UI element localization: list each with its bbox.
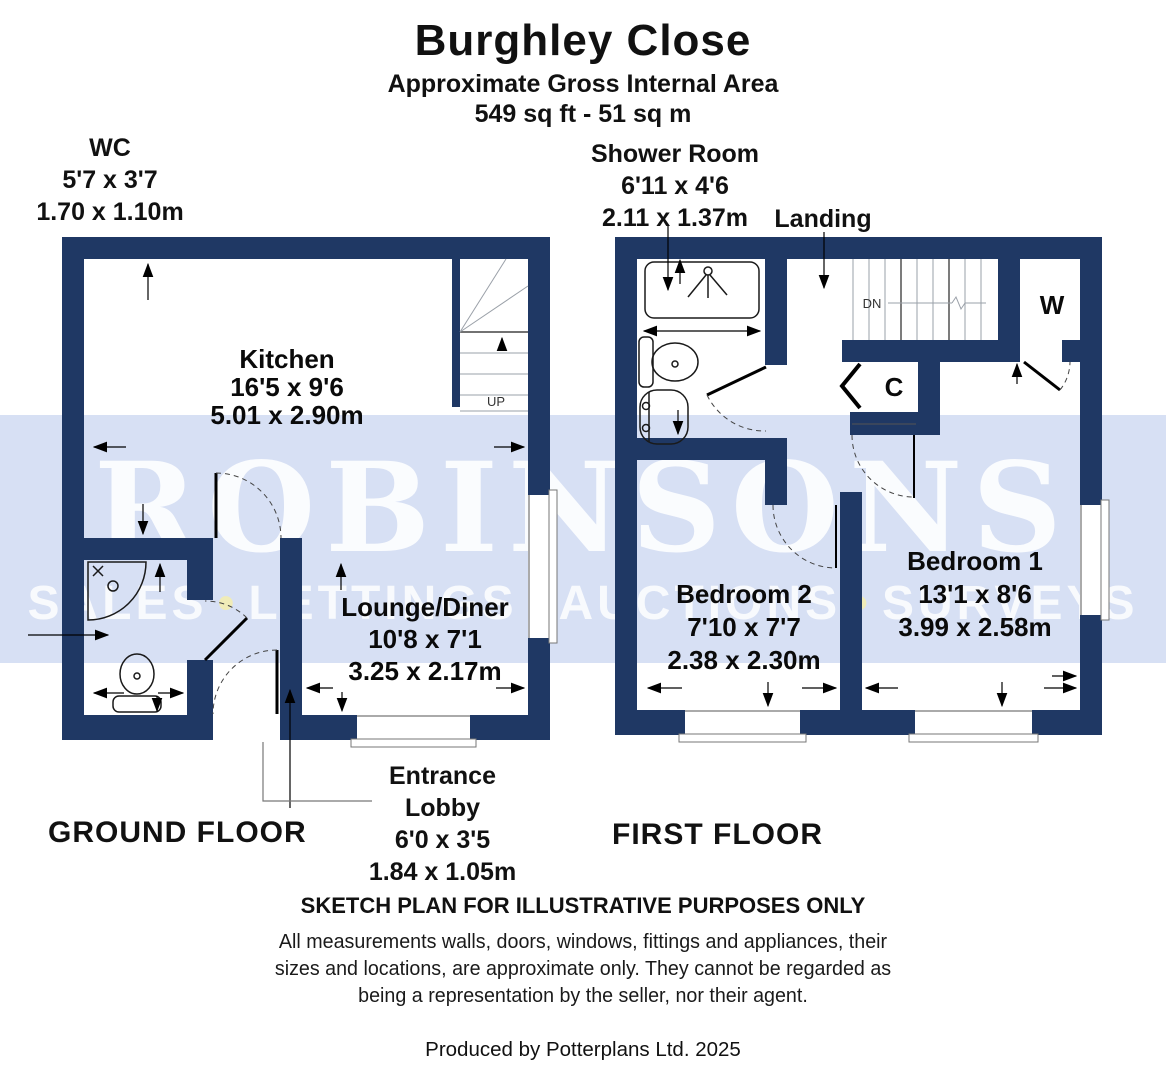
room-size-metric: 1.70 x 1.10m <box>20 196 200 228</box>
bedroom2-label: Bedroom 2 7'10 x 7'7 2.38 x 2.30m <box>667 579 820 675</box>
first-floor-plan: DN <box>615 226 1109 742</box>
sketch-plan-note: SKETCH PLAN FOR ILLUSTRATIVE PURPOSES ON… <box>0 893 1166 919</box>
bedroom1-side-window <box>1080 500 1109 620</box>
page-title: Burghley Close <box>0 16 1166 66</box>
disclaimer-line: sizes and locations, are approximate onl… <box>23 955 1142 982</box>
cupboard-label: C <box>885 372 904 402</box>
room-size-imperial: 6'11 x 4'6 <box>582 170 768 202</box>
front-door <box>213 650 277 714</box>
room-name: Lounge/Diner <box>341 592 509 622</box>
landing-callout: Landing <box>753 203 893 235</box>
room-size-metric: 3.25 x 2.17m <box>348 656 501 686</box>
room-name: Entrance Lobby <box>350 760 535 824</box>
bedroom2-door <box>773 505 836 568</box>
wc-door <box>205 601 247 660</box>
room-size-imperial: 10'8 x 7'1 <box>368 624 482 654</box>
gross-internal-area: 549 sq ft - 51 sq m <box>0 100 1166 129</box>
corner-basin-icon <box>88 562 146 620</box>
lounge-window <box>351 715 476 747</box>
kitchen-label: Kitchen 16'5 x 9'6 5.01 x 2.90m <box>210 344 363 430</box>
toilet-icon <box>639 337 698 387</box>
stairs-up-label: UP <box>487 394 505 409</box>
wc-room-callout: WC 5'7 x 3'7 1.70 x 1.10m <box>20 132 200 228</box>
ground-floor-title: GROUND FLOOR <box>48 816 307 850</box>
room-size-imperial: 7'10 x 7'7 <box>687 612 801 642</box>
room-name: Kitchen <box>239 344 334 374</box>
entrance-lobby-callout: Entrance Lobby 6'0 x 3'5 1.84 x 1.05m <box>350 760 535 888</box>
room-size-imperial: 6'0 x 3'5 <box>350 824 535 856</box>
shower-tray-icon <box>645 262 759 318</box>
room-name: Landing <box>753 203 893 235</box>
kitchen-door <box>216 473 281 538</box>
wardrobe-label: W <box>1040 290 1065 320</box>
room-size-imperial: 13'1 x 8'6 <box>918 579 1032 609</box>
floorplan-page: ROBINSONS SALES•LETTINGS•AUCTIONS•SURVEY… <box>0 0 1166 1080</box>
bedroom1-window <box>909 710 1038 742</box>
staircase-up: UP <box>460 259 528 411</box>
room-name: Shower Room <box>582 138 768 170</box>
disclaimer-text: All measurements walls, doors, windows, … <box>23 928 1142 1009</box>
first-floor-title: FIRST FLOOR <box>612 818 823 852</box>
stairs-down-label: DN <box>863 296 882 311</box>
room-size-metric: 1.84 x 1.05m <box>350 856 535 888</box>
room-name: WC <box>20 132 200 164</box>
room-size-imperial: 16'5 x 9'6 <box>230 372 344 402</box>
wardrobe-door <box>1024 362 1070 390</box>
kitchen-side-window <box>528 490 557 643</box>
page-subtitle: Approximate Gross Internal Area <box>0 70 1166 99</box>
staircase-down: DN <box>853 259 986 340</box>
shower-room-callout: Shower Room 6'11 x 4'6 2.11 x 1.37m <box>582 138 768 234</box>
disclaimer-line: being a representation by the seller, no… <box>23 982 1142 1009</box>
room-name: Bedroom 2 <box>676 579 812 609</box>
bedroom1-label: Bedroom 1 13'1 x 8'6 3.99 x 2.58m <box>898 546 1051 642</box>
room-size-metric: 3.99 x 2.58m <box>898 612 1051 642</box>
room-size-imperial: 5'7 x 3'7 <box>20 164 200 196</box>
ground-floor-plan: UP <box>28 237 557 808</box>
producer-credit: Produced by Potterplans Ltd. 2025 <box>0 1038 1166 1062</box>
room-name: Bedroom 1 <box>907 546 1043 576</box>
room-size-metric: 2.11 x 1.37m <box>582 202 768 234</box>
toilet-icon <box>113 654 161 712</box>
bedroom2-window <box>679 710 806 742</box>
room-size-metric: 2.38 x 2.30m <box>667 645 820 675</box>
disclaimer-line: All measurements walls, doors, windows, … <box>23 928 1142 955</box>
basin-icon <box>640 390 688 444</box>
lounge-label: Lounge/Diner 10'8 x 7'1 3.25 x 2.17m <box>341 592 509 686</box>
cupboard-door <box>842 364 860 408</box>
shower-room-door <box>707 367 766 431</box>
bedroom1-door <box>852 424 916 498</box>
room-size-metric: 5.01 x 2.90m <box>210 400 363 430</box>
